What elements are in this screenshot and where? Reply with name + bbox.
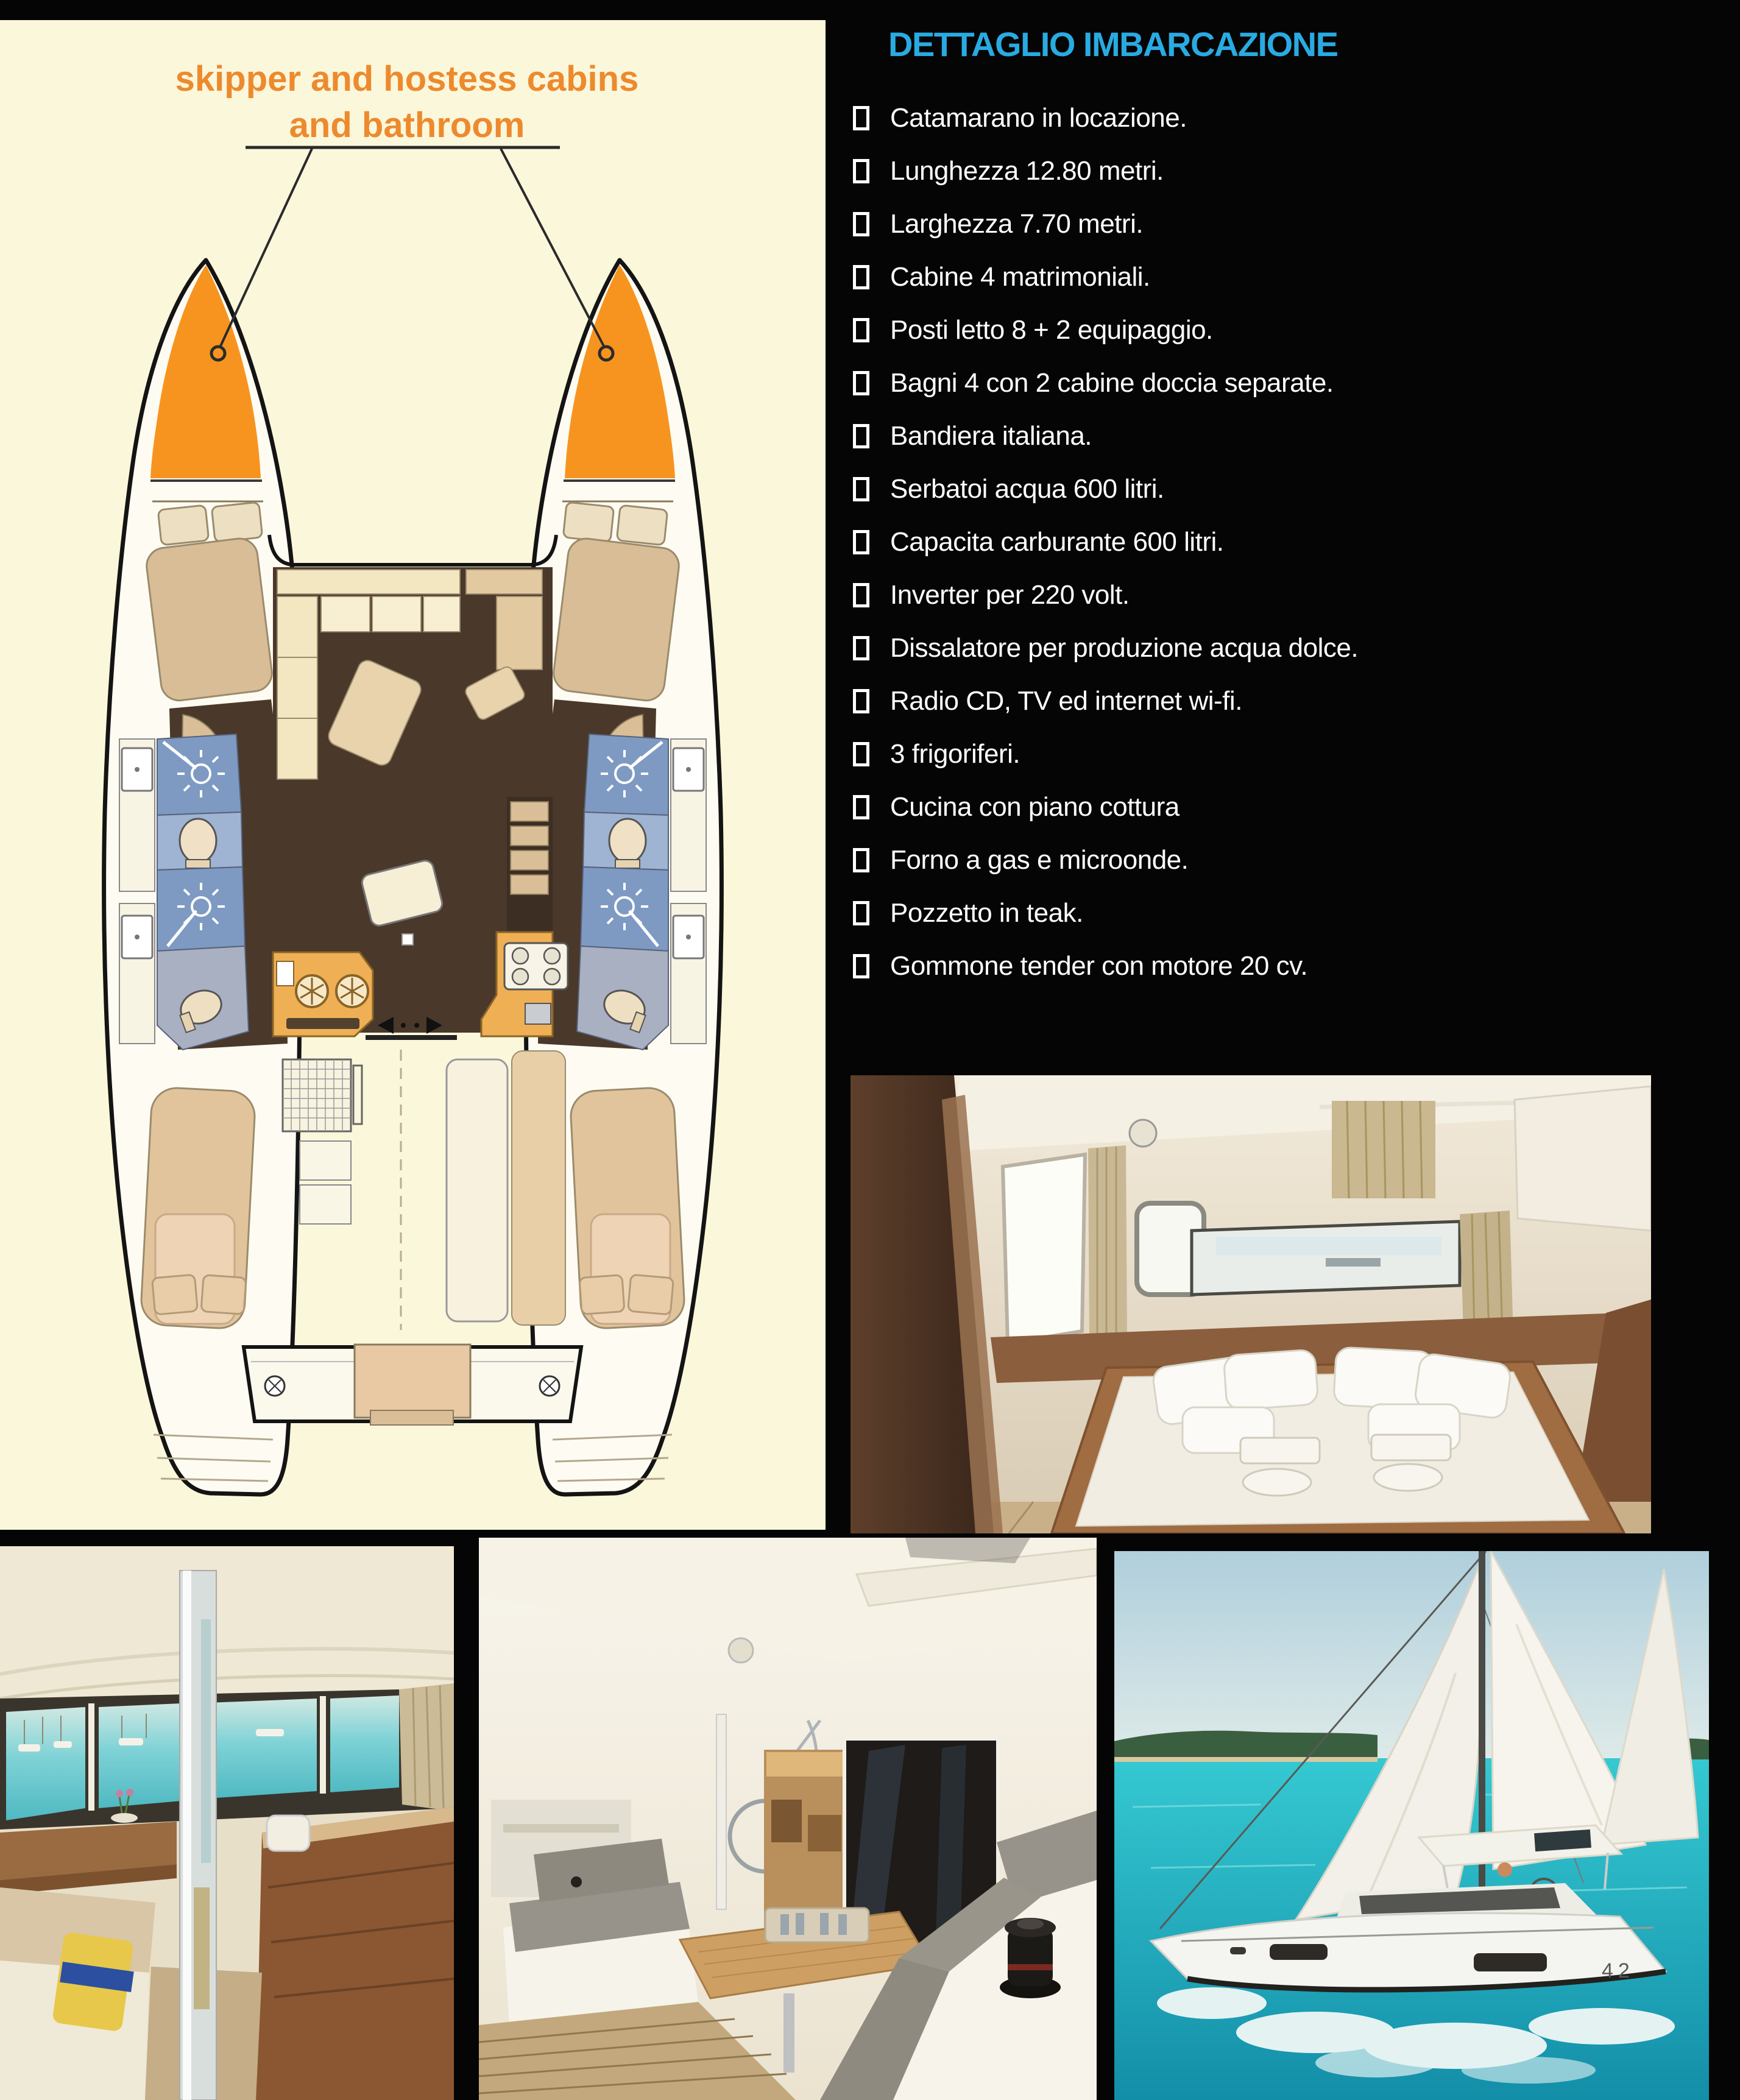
hull-number: 42	[1602, 1959, 1635, 1982]
list-item-label: Capacita carburante 600 litri.	[890, 527, 1224, 557]
checkbox-bullet-icon	[853, 477, 869, 501]
list-item-label: Posti letto 8 + 2 equipaggio.	[890, 315, 1213, 345]
list-item: Inverter per 220 volt.	[853, 568, 1718, 621]
list-item: Lunghezza 12.80 metri.	[853, 144, 1718, 197]
list-item: Catamarano in locazione.	[853, 91, 1718, 144]
list-item: Bandiera italiana.	[853, 409, 1718, 462]
list-item: Posti letto 8 + 2 equipaggio.	[853, 303, 1718, 356]
list-item: Capacita carburante 600 litri.	[853, 515, 1718, 568]
checkbox-bullet-icon	[853, 318, 869, 342]
salon-area	[273, 567, 568, 1040]
list-item-label: Pozzetto in teak.	[890, 898, 1083, 928]
list-item-label: Inverter per 220 volt.	[890, 580, 1130, 610]
list-item: Serbatoi acqua 600 litri.	[853, 462, 1718, 515]
boat-details-list: Catamarano in locazione. Lunghezza 12.80…	[853, 91, 1718, 992]
list-item-label: Bagni 4 con 2 cabine doccia separate.	[890, 368, 1334, 398]
checkbox-bullet-icon	[853, 159, 869, 183]
list-item: Larghezza 7.70 metri.	[853, 197, 1718, 250]
stern-steps	[244, 1345, 581, 1425]
list-item: Gommone tender con motore 20 cv.	[853, 939, 1718, 992]
sailing-photo: 42	[1114, 1551, 1709, 2100]
checkbox-bullet-icon	[853, 212, 869, 236]
salon-photo	[0, 1546, 454, 2100]
brochure-page: skipper and hostess cabins and bathroom …	[0, 0, 1740, 2100]
checkbox-bullet-icon	[853, 636, 869, 660]
list-item: Cabine 4 matrimoniali.	[853, 250, 1718, 303]
list-item: Radio CD, TV ed internet wi-fi.	[853, 674, 1718, 727]
toilet-icon	[180, 819, 216, 863]
deck-plan-label-line1: skipper and hostess cabins	[175, 59, 639, 99]
list-item: 3 frigoriferi.	[853, 727, 1718, 780]
deck-plan-label-line2: and bathroom	[289, 105, 525, 145]
list-item: Bagni 4 con 2 cabine doccia separate.	[853, 356, 1718, 409]
list-item: Forno a gas e microonde.	[853, 833, 1718, 886]
list-item-label: Serbatoi acqua 600 litri.	[890, 474, 1164, 504]
list-item-label: Forno a gas e microonde.	[890, 845, 1188, 875]
bathroom-shower	[157, 734, 241, 815]
checkbox-bullet-icon	[853, 848, 869, 872]
cabin-photo	[851, 1075, 1651, 1533]
deck-plan-drawing: skipper and hostess cabins and bathroom	[0, 20, 826, 1530]
cockpit-photo	[479, 1538, 1097, 2100]
checkbox-bullet-icon	[853, 530, 869, 554]
galley-sinks	[273, 952, 373, 1036]
checkbox-bullet-icon	[853, 795, 869, 819]
checkbox-bullet-icon	[853, 371, 869, 395]
list-item-label: Bandiera italiana.	[890, 421, 1092, 451]
list-item-label: Cucina con piano cottura	[890, 792, 1179, 822]
list-item-label: Lunghezza 12.80 metri.	[890, 156, 1164, 186]
section-title: DETTAGLIO IMBARCAZIONE	[888, 24, 1337, 64]
checkbox-bullet-icon	[853, 901, 869, 925]
checkbox-bullet-icon	[853, 689, 869, 713]
checkbox-bullet-icon	[853, 424, 869, 448]
list-item-label: Larghezza 7.70 metri.	[890, 209, 1143, 239]
list-item: Dissalatore per produzione acqua dolce.	[853, 621, 1718, 674]
cockpit-bench	[140, 1087, 256, 1329]
checkbox-bullet-icon	[853, 742, 869, 766]
list-item-label: 3 frigoriferi.	[890, 739, 1020, 769]
deck-plan-panel: skipper and hostess cabins and bathroom	[0, 20, 826, 1530]
list-item: Cucina con piano cottura	[853, 780, 1718, 833]
list-item-label: Gommone tender con motore 20 cv.	[890, 951, 1307, 981]
checkbox-bullet-icon	[853, 106, 869, 130]
list-item-label: Catamarano in locazione.	[890, 103, 1187, 133]
list-item-label: Radio CD, TV ed internet wi-fi.	[890, 686, 1242, 716]
list-item: Pozzetto in teak.	[853, 886, 1718, 939]
checkbox-bullet-icon	[853, 954, 869, 978]
list-item-label: Dissalatore per produzione acqua dolce.	[890, 633, 1358, 663]
list-item-label: Cabine 4 matrimoniali.	[890, 262, 1150, 292]
checkbox-bullet-icon	[853, 265, 869, 289]
checkbox-bullet-icon	[853, 583, 869, 607]
